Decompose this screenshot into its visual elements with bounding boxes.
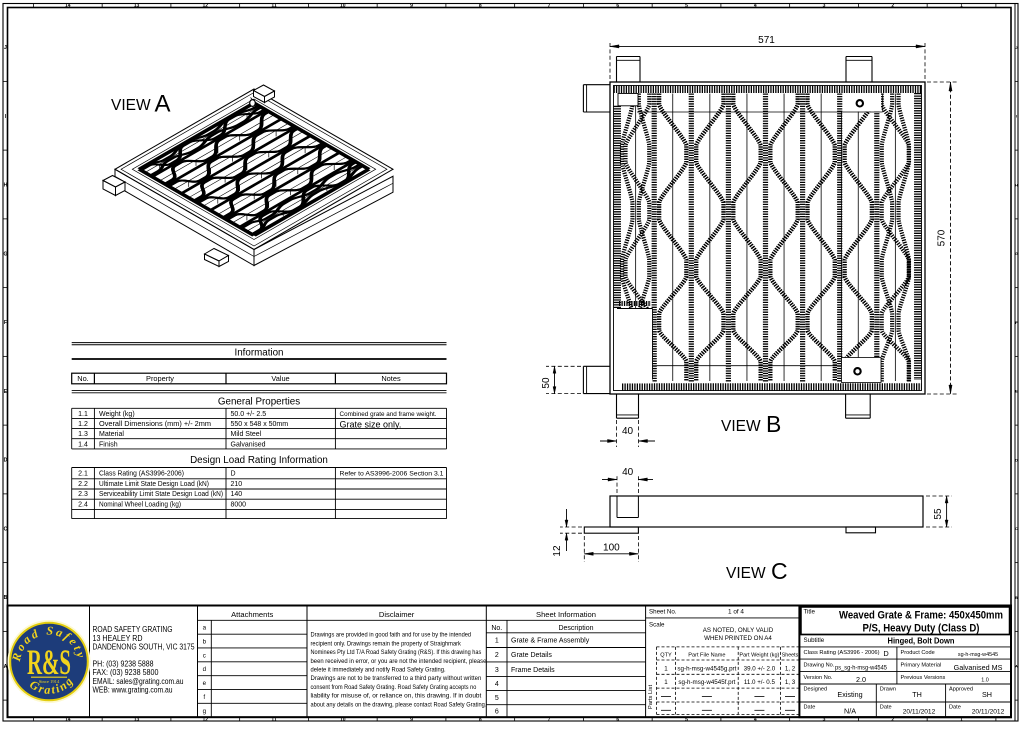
svg-text:G: G [1015,251,1018,256]
svg-text:4: 4 [754,3,757,9]
svg-text:Weaved Grate & Frame: 450x450m: Weaved Grate & Frame: 450x450mm [839,610,1003,622]
svg-text:210: 210 [231,481,243,488]
svg-text:Date: Date [804,704,816,710]
svg-text:9: 9 [410,3,413,9]
svg-text:8000: 8000 [231,501,247,508]
svg-text:Property: Property [146,374,174,383]
svg-text:Attachments: Attachments [231,610,273,619]
svg-text:6: 6 [495,708,499,715]
svg-text:1.4: 1.4 [78,441,88,448]
svg-text:Sheets: Sheets [782,652,799,658]
svg-text:sg-h-msg-w4545g.prt: sg-h-msg-w4545g.prt [677,666,736,672]
svg-text:7: 7 [548,3,551,9]
svg-text:Weight (kg): Weight (kg) [99,411,135,418]
svg-text:2: 2 [495,652,499,659]
svg-text:Frame Details: Frame Details [511,667,555,674]
svg-text:F: F [4,320,7,326]
svg-text:Grate Details: Grate Details [511,652,552,659]
svg-text:Drawn: Drawn [880,686,896,692]
svg-text:TH: TH [912,690,922,699]
svg-text:D: D [4,458,8,464]
svg-text:been received in error, or you: been received in error, or you are not t… [311,659,488,665]
svg-text:2.4: 2.4 [78,501,88,508]
svg-text:39.0 +/- 2.0: 39.0 +/- 2.0 [744,665,776,672]
svg-text:50: 50 [541,377,552,389]
svg-text:B: B [4,595,8,601]
svg-text:8: 8 [479,3,482,9]
svg-text:liability for misuse of, or re: liability for misuse of, or reliance on,… [311,694,482,700]
svg-text:Serviceability Limit State Des: Serviceability Limit State Design Load (… [99,491,223,498]
svg-text:Class Rating (AS3996-2006): Class Rating (AS3996-2006) [99,471,184,478]
svg-text:Subtitle: Subtitle [804,637,825,644]
svg-text:550 x 548 x 50mm: 550 x 548 x 50mm [231,421,289,428]
svg-text:1: 1 [664,679,668,686]
svg-text:consent from Road Safety Grati: consent from Road Safety Grating. Road S… [311,685,477,691]
svg-text:I: I [1016,114,1017,119]
svg-text:Existing: Existing [837,690,862,699]
svg-text:DANDENONG SOUTH, VIC 3175: DANDENONG SOUTH, VIC 3175 [93,642,196,651]
svg-text:C: C [1015,526,1018,531]
svg-text:1.2: 1.2 [78,421,88,428]
svg-text:1: 1 [495,638,499,645]
svg-text:C: C [4,526,8,532]
svg-text:No.: No. [77,374,89,383]
svg-text:Class Rating (AS3996 - 2006): Class Rating (AS3996 - 2006) [804,650,880,656]
svg-text:a: a [203,625,207,632]
svg-text:2.3: 2.3 [78,491,88,498]
svg-text:Scale: Scale [649,621,665,628]
svg-text:about any details on the drawi: about any details on the drawing, please… [311,702,487,708]
svg-text:Part Weight (kg): Part Weight (kg) [739,652,779,658]
svg-text:Part File Name: Part File Name [688,652,725,658]
svg-text:1: 1 [664,665,668,672]
svg-text:B: B [1015,595,1018,600]
svg-text:2: 2 [891,3,894,9]
svg-text:Version No.: Version No. [804,675,833,681]
svg-text:J: J [1015,45,1017,50]
svg-text:2.2: 2.2 [78,481,88,488]
svg-text:Nominal Wheel Loading (kg): Nominal Wheel Loading (kg) [99,501,181,508]
svg-text:Information: Information [234,347,283,358]
svg-text:Value: Value [271,374,289,383]
svg-text:Ultimate Limit State Design Lo: Ultimate Limit State Design Load (kN) [99,481,209,488]
svg-text:55: 55 [933,508,944,520]
svg-text:Description: Description [558,625,593,632]
svg-text:Sheet No.: Sheet No. [649,609,677,616]
svg-text:Date: Date [949,704,961,710]
svg-text:D: D [883,649,888,658]
svg-text:b: b [203,639,207,646]
svg-text:Drawings are provided in good: Drawings are provided in good faith and … [311,633,472,639]
svg-text:Overall Dimensions (mm) +/- 2m: Overall Dimensions (mm) +/- 2mm [99,421,211,428]
svg-text:Nominees Pty Ltd T/A Road Safe: Nominees Pty Ltd T/A Road Safety Grating… [311,650,482,656]
svg-text:Galvanised: Galvanised [231,441,266,448]
svg-text:H: H [1015,182,1018,187]
svg-text:11.0 +/- 0.5: 11.0 +/- 0.5 [744,679,776,686]
svg-text:Parts List: Parts List [648,685,654,710]
svg-text:12: 12 [552,545,563,557]
svg-text:Mild Steel: Mild Steel [231,431,262,438]
svg-text:sg-h-msg-w4545f.prt: sg-h-msg-w4545f.prt [678,680,735,686]
svg-text:B: B [766,411,781,437]
svg-text:R&S: R&S [27,642,71,682]
svg-text:f: f [203,694,205,701]
svg-text:Grate size only.: Grate size only. [340,419,402,429]
svg-text:1.1: 1.1 [78,411,88,418]
svg-text:Galvanised MS: Galvanised MS [954,663,1003,672]
svg-text:Product Code: Product Code [901,650,935,656]
svg-text:E: E [1015,389,1018,394]
svg-text:5: 5 [685,3,688,9]
svg-text:g: g [203,708,207,715]
svg-text:20/11/2012: 20/11/2012 [972,709,1005,716]
svg-text:13: 13 [134,3,140,9]
svg-text:40: 40 [622,467,634,478]
svg-text:1: 1 [960,3,963,9]
svg-text:3: 3 [495,667,499,674]
svg-text:Sheet Information: Sheet Information [536,610,596,619]
svg-text:No.: No. [491,625,502,632]
svg-text:d: d [203,666,207,673]
svg-text:5: 5 [495,695,499,702]
svg-text:D: D [231,471,236,478]
svg-text:delete it immediately and noti: delete it immediately and notify Road Sa… [311,667,446,673]
svg-text:P/S, Heavy Duty (Class D): P/S, Heavy Duty (Class D) [863,622,980,634]
svg-text:Disclaimer: Disclaimer [379,610,415,619]
svg-text:VIEW: VIEW [726,565,766,582]
svg-text:Notes: Notes [381,374,401,383]
svg-text:General Properties: General Properties [218,397,300,408]
svg-text:recipient only. Drawings remai: recipient only. Drawings remain the prop… [311,641,462,647]
svg-text:Combined grate and frame weigh: Combined grate and frame weight. [340,411,437,418]
svg-text:2.0: 2.0 [856,675,866,684]
svg-text:1.0: 1.0 [981,678,989,684]
svg-text:WHEN PRINTED ON A4: WHEN PRINTED ON A4 [704,635,772,642]
svg-text:QTY: QTY [660,652,672,658]
svg-text:1, 2: 1, 2 [785,665,796,672]
svg-text:1, 3: 1, 3 [785,679,796,686]
svg-text:A: A [155,91,171,118]
svg-text:Finish: Finish [99,441,118,448]
svg-text:2.1: 2.1 [78,471,88,478]
svg-text:G: G [3,251,7,257]
svg-text:H: H [4,183,8,189]
svg-text:Designed: Designed [804,686,828,692]
svg-text:VIEW: VIEW [721,418,761,435]
svg-text:3: 3 [823,3,826,9]
svg-text:D: D [1015,457,1018,462]
svg-text:Grate & Frame Assembly: Grate & Frame Assembly [511,638,590,645]
svg-text:14: 14 [65,3,71,9]
svg-text:Title: Title [804,609,816,616]
svg-text:Primary Material: Primary Material [901,663,942,669]
svg-text:SH: SH [982,690,992,699]
svg-text:Approved: Approved [949,686,973,692]
svg-text:11: 11 [271,3,277,9]
svg-text:20/11/2012: 20/11/2012 [903,709,936,716]
svg-text:Drawing No.: Drawing No. [804,663,835,669]
svg-text:140: 140 [231,491,243,498]
svg-text:12: 12 [202,3,208,9]
svg-text:c: c [203,652,206,659]
svg-text:6: 6 [616,3,619,9]
svg-text:571: 571 [758,35,775,46]
svg-text:50.0 +/- 2.5: 50.0 +/- 2.5 [231,411,267,418]
svg-text:4: 4 [495,681,499,688]
svg-text:A: A [1015,664,1018,669]
svg-text:1 of 4: 1 of 4 [728,609,744,616]
svg-text:C: C [771,558,788,584]
svg-text:sg-h-msg-w4545: sg-h-msg-w4545 [958,652,998,658]
svg-text:Date: Date [880,704,892,710]
svg-text:Previous Versions: Previous Versions [901,675,946,681]
svg-text:Hinged, Bolt Down: Hinged, Bolt Down [888,636,955,645]
svg-text:e: e [203,680,207,687]
svg-text:Drawings are not to be transfe: Drawings are not to be transferred to a … [311,676,482,682]
svg-text:Design Load Rating Information: Design Load Rating Information [190,455,328,466]
svg-text:570: 570 [937,229,948,246]
svg-text:AS NOTED, ONLY VALID: AS NOTED, ONLY VALID [703,627,774,634]
svg-text:N/A: N/A [844,707,856,716]
svg-text:J: J [4,45,7,51]
svg-text:Since 1914: Since 1914 [39,679,60,684]
svg-text:100: 100 [603,542,620,553]
svg-text:WEB: www.grating.com.au: WEB: www.grating.com.au [93,685,173,694]
svg-text:Material: Material [99,431,124,438]
svg-text:ps_sg-h-msg-w4545: ps_sg-h-msg-w4545 [835,664,887,671]
svg-text:40: 40 [622,426,634,437]
svg-text:Refer to AS3996-2006 Section 3: Refer to AS3996-2006 Section 3.1 [340,471,444,478]
svg-text:10: 10 [340,3,346,9]
svg-text:1.3: 1.3 [78,431,88,438]
svg-text:VIEW: VIEW [111,97,151,114]
